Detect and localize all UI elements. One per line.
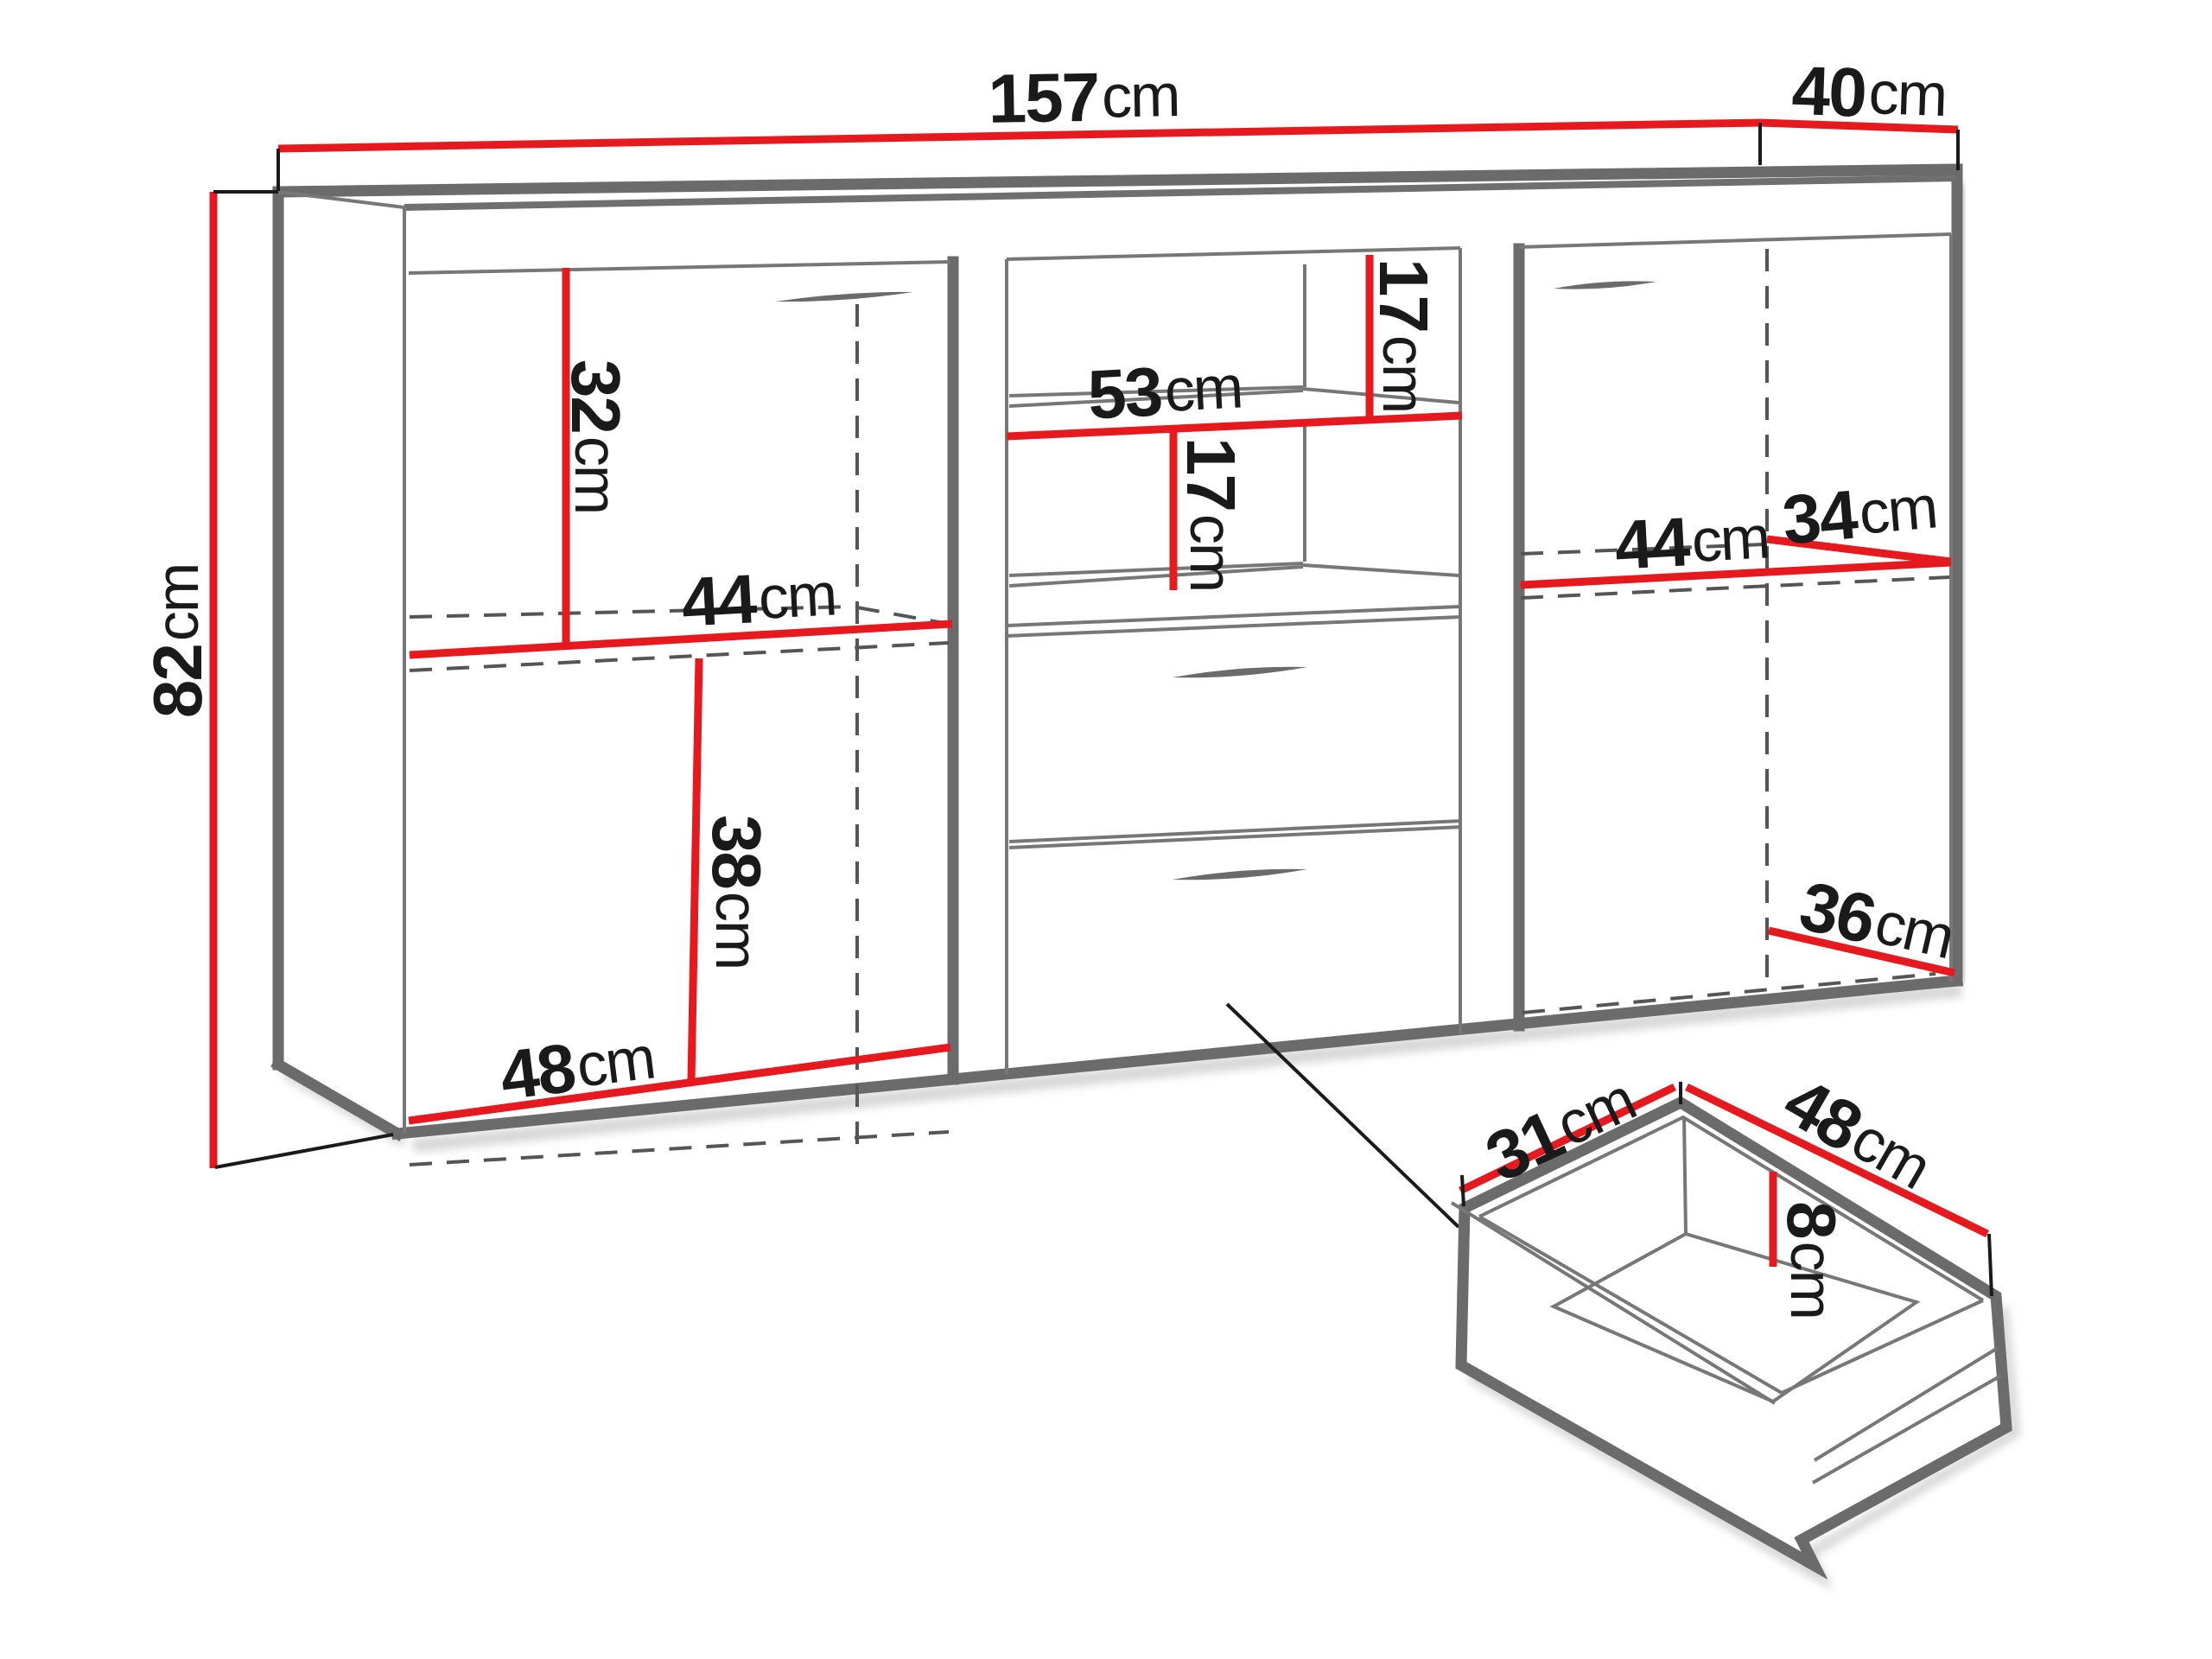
right-opening-top-edge: [1519, 234, 1951, 247]
dim-label-left-bottom-width: 48cm: [496, 1019, 658, 1114]
dim-label-right-shelf-depth: 34cm: [1779, 468, 1939, 558]
dim-label-middle-lower-gap: 17cm: [1173, 437, 1250, 591]
tick-drawer-left: [1462, 1175, 1464, 1206]
middle-shelf2-right-edge: [1303, 565, 1459, 575]
niche-floor-front-edge: [1007, 617, 1460, 636]
drawer-back-corner-edge: [1684, 1117, 1686, 1234]
left-door-handle: [775, 292, 913, 302]
dim-line-left-shelf-width: [410, 624, 952, 655]
dim-label-middle-shelf-width: 53cm: [1086, 348, 1244, 433]
cabinet-right-shadow: [1963, 183, 1965, 983]
dim-label-drawer-height: 8cm: [1774, 1201, 1851, 1319]
cabinet-side-bottom-edge: [278, 1065, 397, 1134]
dim-label-left-shelf-width: 44cm: [680, 556, 838, 640]
dim-label-cabinet-height: 82cm: [139, 564, 216, 718]
diagram-page: 157cm 40cm 82cm 32cm 44cm 38cm 48cm 53cm…: [0, 0, 2212, 1659]
dim-label-cabinet-depth: 40cm: [1790, 51, 1947, 133]
dim-label-left-lower-height: 38cm: [699, 815, 776, 969]
dim-label-right-shelf-width: 44cm: [1613, 499, 1771, 583]
sideboard-dimension-diagram: 157cm 40cm 82cm 32cm 44cm 38cm 48cm 53cm…: [0, 0, 2212, 1659]
niche-floor-back-edge: [1007, 607, 1460, 626]
dim-label-middle-upper-gap: 17cm: [1366, 258, 1443, 412]
dim-label-left-upper-height: 32cm: [558, 359, 635, 513]
dim-line-left-lower-height: [691, 658, 699, 1082]
dim-label-right-bottom-depth: 36cm: [1793, 867, 1961, 976]
drawer2-handle: [1173, 869, 1307, 880]
tick-height-bottom: [215, 1135, 393, 1167]
drawer1-handle: [1173, 667, 1307, 678]
dim-label-cabinet-width: 157cm: [988, 57, 1179, 137]
left-opening-top-edge: [409, 262, 950, 273]
right-door-handle: [1554, 281, 1656, 289]
